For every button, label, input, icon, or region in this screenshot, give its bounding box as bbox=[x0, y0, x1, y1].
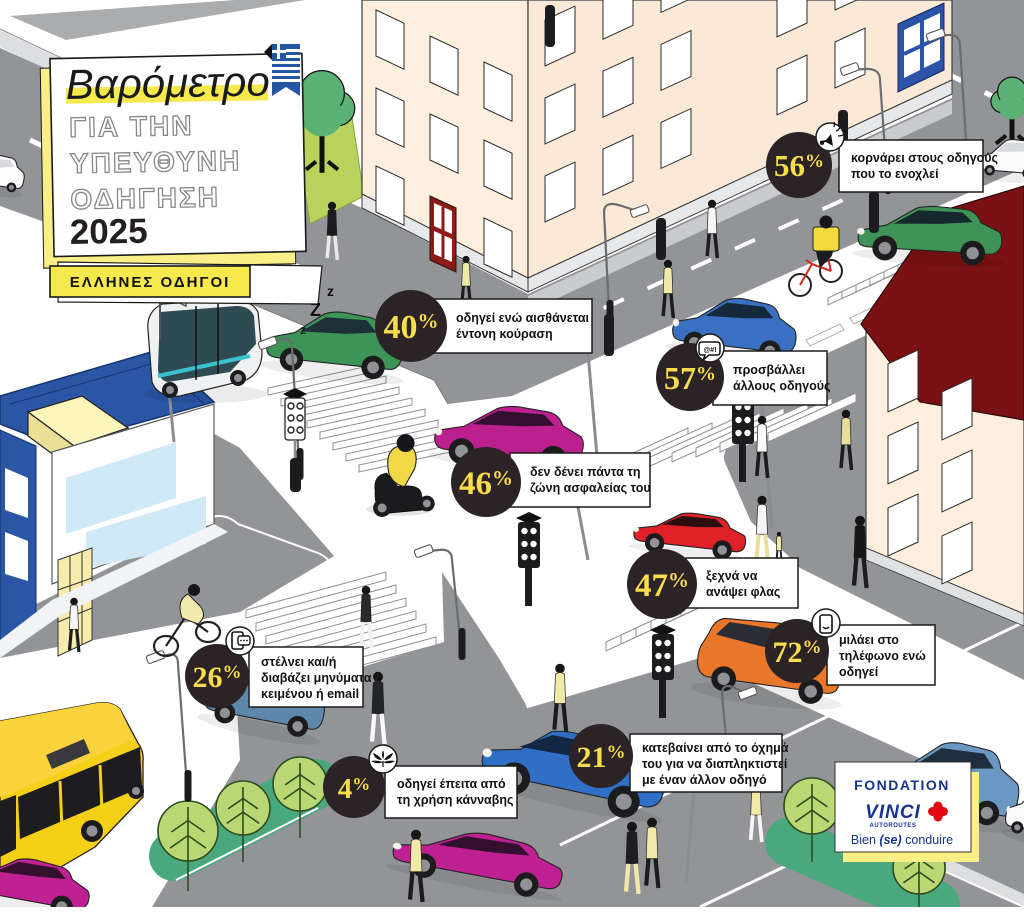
svg-text:ΓΙΑ ΤΗΝ: ΓΙΑ ΤΗΝ bbox=[69, 110, 194, 143]
svg-text:z: z bbox=[327, 283, 334, 299]
svg-text:έντονη κούραση: έντονη κούραση bbox=[456, 327, 553, 341]
svg-text:2025: 2025 bbox=[69, 212, 148, 252]
svg-text:Βαρόμετρο: Βαρόμετρο bbox=[65, 57, 270, 108]
svg-text:Bien (se) conduire: Bien (se) conduire bbox=[851, 833, 953, 847]
svg-text:ξεχνά να: ξεχνά να bbox=[706, 569, 758, 583]
svg-text:μιλάει στο: μιλάει στο bbox=[839, 633, 899, 647]
svg-text:κειμένου ή email: κειμένου ή email bbox=[261, 687, 359, 701]
svg-text:οδηγεί ενώ αισθάνεται: οδηγεί ενώ αισθάνεται bbox=[456, 311, 590, 325]
svg-text:στέλνει και/ή: στέλνει και/ή bbox=[261, 655, 336, 669]
svg-text:VINCI: VINCI bbox=[865, 802, 921, 823]
svg-text:τη χρήση κάνναβης: τη χρήση κάνναβης bbox=[397, 793, 514, 807]
svg-text:τηλέφωνο ενώ: τηλέφωνο ενώ bbox=[839, 649, 926, 663]
svg-text:ΥΠΕΥΘΥΝΗ: ΥΠΕΥΘΥΝΗ bbox=[70, 145, 242, 179]
svg-text:άλλους οδηγούς: άλλους οδηγούς bbox=[733, 379, 831, 393]
svg-text:κατεβαίνει από το όχημά: κατεβαίνει από το όχημά bbox=[642, 741, 789, 755]
svg-text:ΕΛΛΗΝΕΣ ΟΔΗΓΟΙ: ΕΛΛΗΝΕΣ ΟΔΗΓΟΙ bbox=[70, 274, 231, 291]
svg-text:προσβάλλει: προσβάλλει bbox=[733, 363, 806, 377]
svg-text:κορνάρει στους οδηγούς: κορνάρει στους οδηγούς bbox=[851, 151, 998, 165]
svg-text:ΟΔΗΓΗΣΗ: ΟΔΗΓΗΣΗ bbox=[70, 181, 220, 215]
svg-text:ζώνη ασφαλείας του: ζώνη ασφαλείας του bbox=[530, 481, 651, 495]
svg-text:δεν δένει πάντα τη: δεν δένει πάντα τη bbox=[530, 465, 640, 479]
svg-text:που το ενοχλεί: που το ενοχλεί bbox=[851, 167, 939, 181]
svg-text:AUTOROUTES: AUTOROUTES bbox=[870, 823, 917, 829]
svg-text:με έναν άλλον οδηγό: με έναν άλλον οδηγό bbox=[642, 773, 767, 787]
svg-text:διαβάζει μηνύματα: διαβάζει μηνύματα bbox=[261, 671, 372, 685]
svg-text:z: z bbox=[300, 323, 306, 337]
svg-text:οδηγεί έπειτα από: οδηγεί έπειτα από bbox=[397, 777, 506, 791]
svg-text:ανάψει φλας: ανάψει φλας bbox=[706, 585, 780, 599]
svg-text:@#!: @#! bbox=[703, 347, 716, 354]
svg-text:FONDATION: FONDATION bbox=[854, 777, 950, 793]
svg-text:οδηγεί: οδηγεί bbox=[839, 665, 879, 679]
svg-text:του για να διαπληκτιστεί: του για να διαπληκτιστεί bbox=[642, 757, 788, 771]
